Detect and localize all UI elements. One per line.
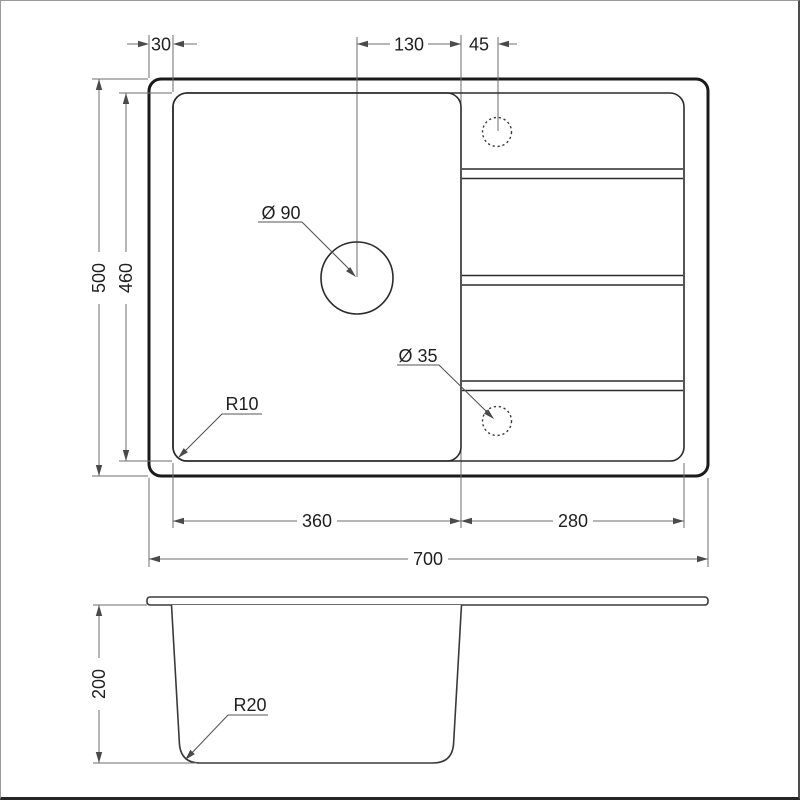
dim-bottom-radius: R20 [233, 695, 266, 715]
side-view [147, 597, 708, 763]
dim-corner-radius: R10 [225, 394, 258, 414]
sink-technical-drawing: 30 130 45 500 460 Ø 90 Ø 35 R10 360 280 … [1, 1, 798, 797]
sink-outer-edge [149, 79, 708, 476]
dim-divider-to-hole: 45 [469, 35, 489, 55]
dim-bowl-depth: 200 [89, 669, 109, 699]
dim-drain-to-divider: 130 [394, 35, 424, 55]
top-view [149, 79, 708, 476]
bowl-profile [172, 605, 462, 763]
dim-bowl-width: 360 [302, 511, 332, 531]
dim-drainboard-width: 280 [558, 511, 588, 531]
drawing-sheet: 30 130 45 500 460 Ø 90 Ø 35 R10 360 280 … [0, 0, 800, 800]
dim-inner-depth: 460 [116, 263, 136, 293]
dim-outer-width: 700 [413, 549, 443, 569]
dim-hole-diameter: Ø 35 [398, 346, 437, 366]
dim-outer-depth: 500 [89, 263, 109, 293]
sink-rim-profile [147, 597, 708, 605]
dim-rim-offset: 30 [151, 35, 171, 55]
dim-drain-diameter: Ø 90 [261, 203, 300, 223]
